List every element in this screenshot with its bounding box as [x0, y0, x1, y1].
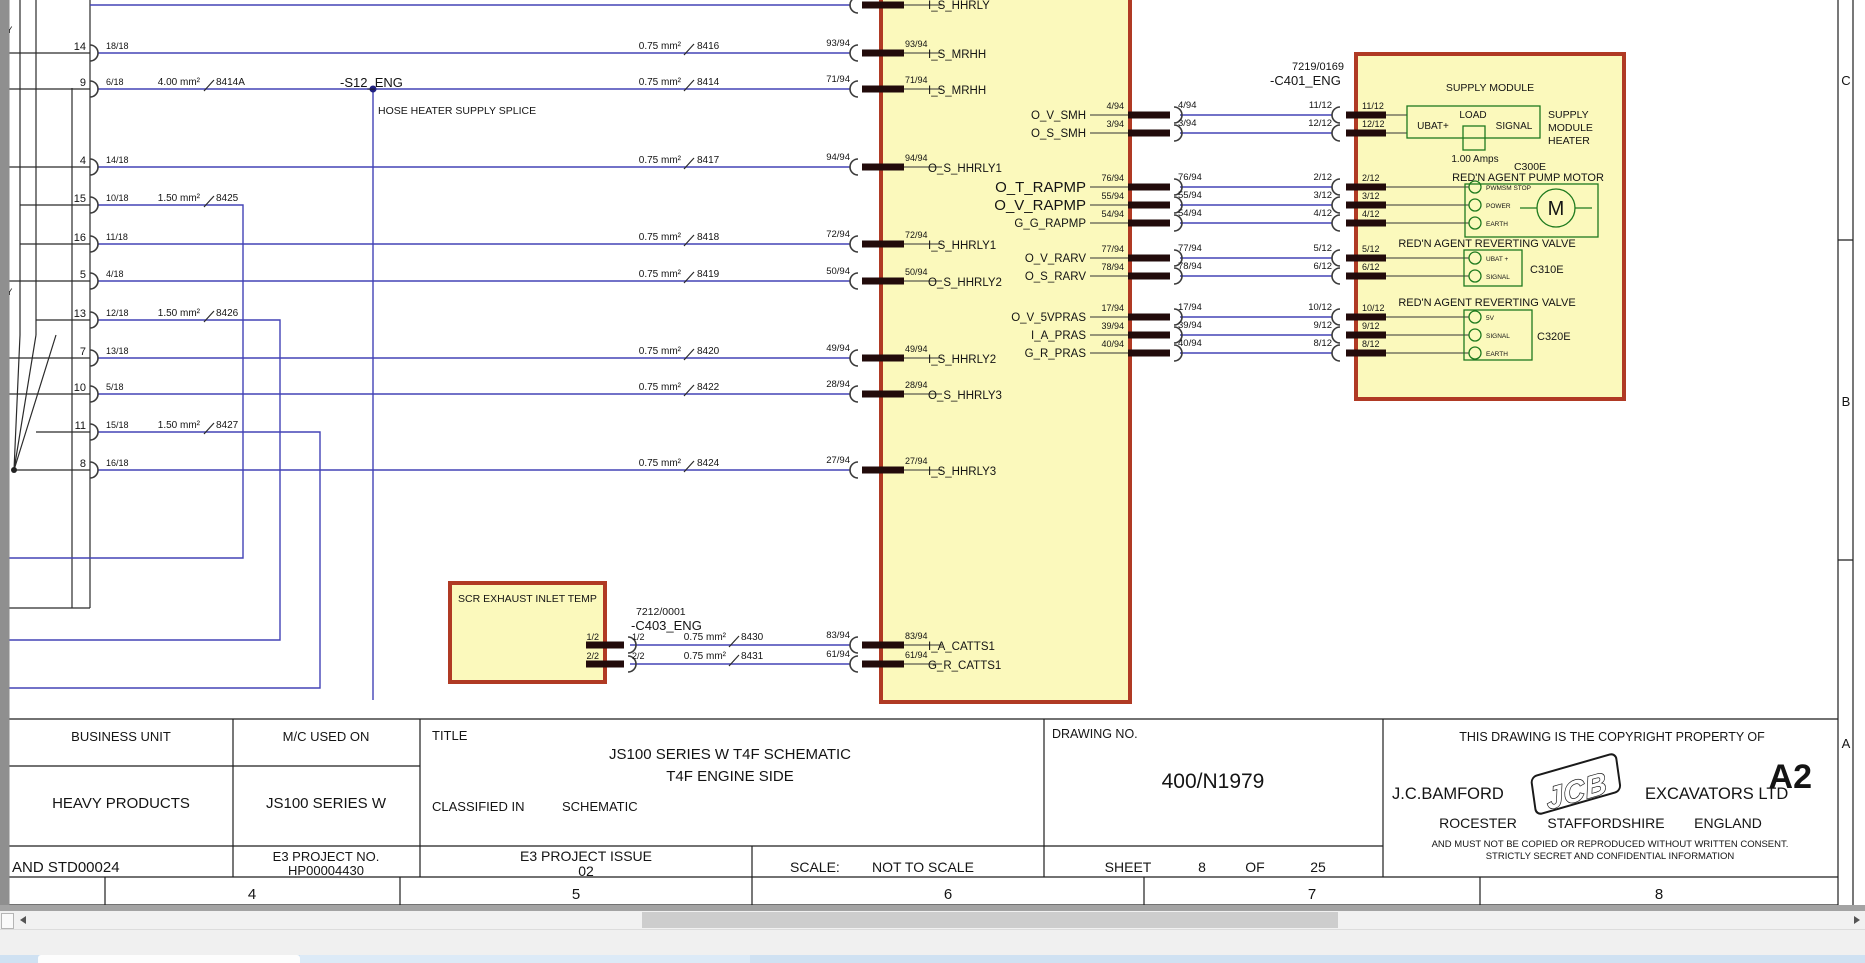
- e3-issue-label: E3 PROJECT ISSUE: [520, 848, 652, 864]
- cavity-label: 14/18: [106, 155, 129, 165]
- e3-project-no-value: HP00004430: [288, 863, 364, 878]
- zone-number: 6: [944, 886, 952, 903]
- cavity-label: 10/18: [106, 193, 129, 203]
- pin-label: 11: [75, 420, 86, 432]
- signal-label: O_S_HHRLY3: [928, 390, 1002, 402]
- ecu-cavity-inner: 71/94: [905, 75, 928, 85]
- cavity-label: 12/18: [106, 308, 129, 318]
- signal-label: O_V_5VPRAS: [1011, 312, 1086, 324]
- terminal-label: POWER: [1486, 203, 1511, 210]
- pin-label: 13: [74, 308, 86, 320]
- wire-gauge: 1.50 mm²: [158, 420, 201, 431]
- signal-label: O_T_RAPMP: [995, 179, 1086, 196]
- taskbar-active-app[interactable]: [38, 955, 300, 963]
- ecu-cavity-outer: 3/94: [1178, 118, 1197, 129]
- module-cavity-outer: 9/12: [1314, 320, 1333, 331]
- e3-issue-value: 02: [578, 863, 594, 879]
- module-cavity-inner: 10/12: [1362, 303, 1385, 313]
- copyright-line1: THIS DRAWING IS THE COPYRIGHT PROPERTY O…: [1459, 730, 1765, 744]
- ecu-cavity-outer: 61/94: [826, 649, 850, 660]
- wire-gauge: 0.75 mm²: [639, 382, 682, 393]
- terminal-label: EARTH: [1486, 221, 1508, 228]
- signal-label: G_R_CATTS1: [928, 660, 1001, 672]
- ecu-cavity-inner: 72/94: [905, 230, 928, 240]
- viewer-toolbar: 8 / 25 125% − +: [0, 929, 1865, 955]
- signal-label: I_A_PRAS: [1031, 330, 1086, 342]
- wire-number: 8422: [697, 382, 720, 393]
- wire-number: 8424: [697, 458, 720, 469]
- zone-number: 8: [1655, 886, 1663, 903]
- title-block: BUSINESS UNIT HEAVY PRODUCTS AND STD0002…: [12, 727, 1812, 879]
- signal-label: O_V_RARV: [1025, 253, 1086, 265]
- ecu-cavity-outer: 4/94: [1178, 100, 1197, 111]
- zone-number: 7: [1308, 886, 1316, 903]
- supply-module-title: SUPPLY MODULE: [1446, 82, 1534, 94]
- cavity-label: 1/2: [632, 632, 645, 642]
- splice-name: -S12_ENG: [340, 75, 403, 90]
- module-cavity-inner: 4/12: [1362, 209, 1380, 219]
- terminal-label: UBAT +: [1486, 256, 1509, 263]
- module-cavity-inner: 3/12: [1362, 191, 1380, 201]
- ecu-cavity-outer: 77/94: [1178, 243, 1202, 254]
- cavity-label: 6/18: [106, 77, 124, 87]
- module-cavity-outer: 11/12: [1309, 100, 1332, 111]
- company-left: J.C.BAMFORD: [1392, 785, 1504, 803]
- fuse-rating: 1.00 Amps: [1451, 154, 1498, 165]
- ecu-cavity-outer: 40/94: [1178, 338, 1202, 349]
- pin-label: 4: [80, 155, 86, 167]
- module-cavity-outer: 2/12: [1314, 172, 1333, 183]
- cavity-label: 13/18: [106, 346, 129, 356]
- component-code: C310E: [1530, 264, 1564, 276]
- module-cavity-outer: 4/12: [1314, 208, 1333, 219]
- ecu-cavity-inner: 94/94: [905, 153, 928, 163]
- cavity-label: 16/18: [106, 458, 129, 468]
- schematic-canvas: AY AY -S12_ENG HOSE HEATER SUPPLY SPLICE…: [0, 0, 1865, 911]
- ecu-cavity-outer: 76/94: [1178, 172, 1202, 183]
- wire-number: 8419: [697, 269, 720, 280]
- component-heading: RED'N AGENT PUMP MOTOR: [1452, 172, 1604, 184]
- component-name: SUPPLY: [1548, 109, 1589, 121]
- left-connector-pin-labels: 1418/18 96/18 414/18 1510/18 1611/18 54/…: [74, 41, 129, 470]
- component-heading: RED'N AGENT REVERTING VALVE: [1398, 238, 1575, 250]
- copyright-notice1: AND MUST NOT BE COPIED OR REPRODUCED WIT…: [1432, 839, 1789, 850]
- terminal-label: UBAT+: [1417, 121, 1449, 132]
- box-pin-label: 1/2: [586, 632, 599, 642]
- ecu-cavity-inner: 28/94: [905, 380, 928, 390]
- ecu-cavity-outer: 78/94: [1178, 261, 1202, 272]
- ecu-cavity-outer: 39/94: [1178, 320, 1202, 331]
- signal-label: I_S_HHRLY: [928, 0, 990, 12]
- business-unit-label: BUSINESS UNIT: [71, 729, 171, 744]
- component-code: C320E: [1537, 331, 1571, 343]
- wire-gauge: 0.75 mm²: [639, 346, 682, 357]
- sheet-number: 8: [1198, 859, 1206, 875]
- ecu-cavity-inner: 50/94: [905, 267, 928, 277]
- terminal-label: EARTH: [1486, 351, 1508, 358]
- copyright-city: ROCESTER: [1439, 815, 1517, 831]
- module-cavity-inner: 5/12: [1362, 244, 1380, 254]
- ecu-cavity-inner: 27/94: [905, 456, 928, 466]
- ecu-cavity-inner: 54/94: [1101, 209, 1124, 219]
- ecu-cavity-outer: 93/94: [826, 38, 850, 49]
- scroll-left-icon[interactable]: [20, 916, 26, 924]
- signal-label: O_V_SMH: [1031, 110, 1086, 122]
- zone-letter: C: [1841, 73, 1850, 88]
- terminal-label: SIGNAL: [1486, 274, 1510, 281]
- wire-number: 8414: [697, 77, 720, 88]
- pin-label: 9: [80, 77, 86, 89]
- horizontal-scrollbar[interactable]: [0, 911, 1865, 929]
- signal-label: O_S_SMH: [1031, 128, 1086, 140]
- sheet-label: SHEET: [1105, 859, 1152, 875]
- wire-gauge: 1.50 mm²: [158, 308, 201, 319]
- cavity-label: 5/18: [106, 382, 124, 392]
- module-cavity-inner: 2/12: [1362, 173, 1380, 183]
- wire-number: 8431: [741, 651, 764, 662]
- scale-label: SCALE:: [790, 859, 840, 875]
- ecu-cavity-inner: 77/94: [1101, 244, 1124, 254]
- sheet-total: 25: [1310, 859, 1326, 875]
- terminal-label: SIGNAL: [1486, 333, 1510, 340]
- wire-gauge: 0.75 mm²: [684, 632, 727, 643]
- classified-value: SCHEMATIC: [562, 799, 638, 814]
- splice-description: HOSE HEATER SUPPLY SPLICE: [378, 105, 536, 117]
- ecu-cavity-outer: 27/94: [826, 455, 850, 466]
- scrollbar-grip: [1, 913, 14, 929]
- signal-label: I_S_HHRLY1: [928, 240, 996, 252]
- ecu-cavity-inner: 93/94: [905, 39, 928, 49]
- zone-letter: A: [1842, 736, 1851, 751]
- module-cavity-outer: 12/12: [1308, 118, 1332, 129]
- left-edge-strip: [0, 0, 9, 911]
- cavity-label: 18/18: [106, 41, 129, 51]
- terminal-label: SIGNAL: [1496, 121, 1533, 132]
- wire-gauge: 0.75 mm²: [639, 458, 682, 469]
- signal-label: I_S_HHRLY2: [928, 354, 996, 366]
- wire-number: 8417: [697, 155, 720, 166]
- wire-gauge: 0.75 mm²: [639, 269, 682, 280]
- taskbar-segment: [300, 955, 750, 963]
- module-cavity-inner: 9/12: [1362, 321, 1380, 331]
- module-cavity-inner: 12/12: [1362, 119, 1385, 129]
- ecu-cavity-outer: 94/94: [826, 152, 850, 163]
- module-cavity-inner: 6/12: [1362, 262, 1380, 272]
- pin-label: 8: [80, 458, 86, 470]
- module-cavity-outer: 6/12: [1314, 261, 1333, 272]
- cavity-label: 4/18: [106, 269, 124, 279]
- zone-letter: B: [1842, 394, 1851, 409]
- mc-used-on-value: JS100 SERIES W: [266, 795, 387, 812]
- copyright-notice2: STRICTLY SECRET AND CONFIDENTIAL INFORMA…: [1486, 851, 1735, 862]
- wire-gauge: 0.75 mm²: [639, 155, 682, 166]
- signal-label: I_S_MRHH: [928, 49, 986, 61]
- wire-number: 8418: [697, 232, 720, 243]
- wire-gauge: 4.00 mm²: [158, 77, 201, 88]
- module-cavity-outer: 8/12: [1314, 338, 1333, 349]
- ecu-cavity-inner: 49/94: [905, 344, 928, 354]
- terminal-label: 5V: [1486, 315, 1495, 322]
- component-name: HEATER: [1548, 135, 1590, 147]
- ecu-cavity-inner: 78/94: [1101, 262, 1124, 272]
- copyright-country: ENGLAND: [1694, 815, 1762, 831]
- scale-value: NOT TO SCALE: [872, 859, 974, 875]
- motor-symbol-letter: M: [1548, 198, 1565, 220]
- cavity-label: 15/18: [106, 420, 129, 430]
- box-pin-label: 2/2: [586, 651, 599, 661]
- terminal-label: LOAD: [1459, 110, 1486, 121]
- wire-number: 8426: [216, 308, 239, 319]
- company-right: EXCAVATORS LTD: [1645, 785, 1788, 803]
- drawing-no-label: DRAWING NO.: [1052, 727, 1138, 741]
- pin-label: 15: [74, 193, 86, 205]
- pin-label: 14: [74, 41, 86, 53]
- pin-label: 5: [80, 269, 86, 281]
- pin-label: 10: [74, 382, 86, 394]
- e3-project-no-label: E3 PROJECT NO.: [273, 849, 380, 864]
- cavity-label: 2/2: [632, 651, 645, 661]
- module-cavity-outer: 10/12: [1308, 302, 1332, 313]
- connector-part-number: 7219/0169: [1292, 61, 1344, 73]
- wire-number: 8420: [697, 346, 720, 357]
- module-cavity-inner: 11/12: [1362, 101, 1384, 111]
- ecu-cavity-inner: 55/94: [1101, 191, 1124, 201]
- wire-number: 8427: [216, 420, 239, 431]
- wire-number: 8425: [216, 193, 239, 204]
- sensor-box-title: SCR EXHAUST INLET TEMP: [458, 593, 597, 605]
- signal-label: G_G_RAPMP: [1014, 218, 1086, 230]
- ecu-cavity-inner: 17/94: [1101, 303, 1124, 313]
- ecu-cavity-inner: 40/94: [1101, 339, 1124, 349]
- component-heading: RED'N AGENT REVERTING VALVE: [1398, 297, 1575, 309]
- note-left: AND STD00024: [12, 859, 120, 876]
- taskbar-strip: [0, 955, 1865, 963]
- zone-number: 4: [248, 886, 256, 903]
- ecu-cavity-inner: 3/94: [1106, 119, 1124, 129]
- ecu-cavity-outer: 49/94: [826, 343, 850, 354]
- wire-gauge: 0.75 mm²: [684, 651, 727, 662]
- signal-label: O_S_HHRLY2: [928, 277, 1002, 289]
- horizontal-scrollbar-thumb[interactable]: [642, 912, 1338, 928]
- ecu-cavity-outer: 28/94: [826, 379, 850, 390]
- signal-label: G_R_PRAS: [1025, 348, 1087, 360]
- pdf-viewer-app: AY AY -S12_ENG HOSE HEATER SUPPLY SPLICE…: [0, 0, 1865, 963]
- ecu-cavity-inner: 39/94: [1101, 321, 1124, 331]
- wire-gauge: 0.75 mm²: [639, 77, 682, 88]
- ecu-cavity-outer: 72/94: [826, 229, 850, 240]
- signal-label: I_S_HHRLY3: [928, 466, 996, 478]
- ecu-cavity-outer: 54/94: [1178, 208, 1202, 219]
- copyright-county: STAFFORDSHIRE: [1547, 815, 1664, 831]
- signal-label: O_S_RARV: [1025, 271, 1086, 283]
- connector-name: -C401_ENG: [1270, 73, 1341, 88]
- wire-number: 8416: [697, 41, 720, 52]
- signal-label: I_A_CATTS1: [928, 641, 995, 653]
- ecu-cavity-outer: 50/94: [826, 266, 850, 277]
- connector-name: -C403_ENG: [631, 618, 702, 633]
- mc-used-on-label: M/C USED ON: [283, 729, 370, 744]
- signal-label: O_S_HHRLY1: [928, 163, 1002, 175]
- drawing-title-line1: JS100 SERIES W T4F SCHEMATIC: [609, 746, 851, 763]
- wire-number: 8430: [741, 632, 764, 643]
- module-cavity-outer: 5/12: [1314, 243, 1333, 254]
- wire-number: 8414A: [216, 77, 245, 88]
- ecu-cavity-outer: 71/94: [826, 74, 850, 85]
- wire-gauge: 1.50 mm²: [158, 193, 201, 204]
- drawing-no-value: 400/N1979: [1162, 770, 1265, 793]
- wire-gauge: 0.75 mm²: [639, 41, 682, 52]
- ecu-cavity-inner: 61/94: [905, 650, 928, 660]
- ecu-cavity-outer: 17/94: [1178, 302, 1202, 313]
- connector-part-number: 7212/0001: [636, 606, 686, 618]
- ecu-cavity-inner: 76/94: [1101, 173, 1124, 183]
- drawing-title-line2: T4F ENGINE SIDE: [666, 768, 794, 785]
- scroll-right-icon[interactable]: [1854, 916, 1860, 924]
- jcb-logo: JCB: [1526, 753, 1628, 820]
- signal-label: O_V_RAPMP: [994, 197, 1086, 214]
- component-name: MODULE: [1548, 122, 1593, 134]
- module-cavity-inner: 8/12: [1362, 339, 1380, 349]
- zone-number: 5: [572, 886, 580, 903]
- ecu-cavity-inner: 83/94: [905, 631, 928, 641]
- of-label: OF: [1245, 859, 1264, 875]
- pin-label: 16: [74, 232, 86, 244]
- cavity-label: 11/18: [106, 232, 128, 242]
- title-label: TITLE: [432, 728, 468, 743]
- terminal-label: PWMSM STOP: [1486, 185, 1531, 192]
- svg-text:JCB: JCB: [1544, 766, 1609, 816]
- classified-label: CLASSIFIED IN: [432, 799, 524, 814]
- pin-label: 7: [80, 346, 86, 358]
- wire-gauge: 0.75 mm²: [639, 232, 682, 243]
- business-unit-value: HEAVY PRODUCTS: [52, 795, 190, 812]
- pin-symbols: [90, 0, 1469, 672]
- ecu-cavity-inner: 4/94: [1106, 101, 1124, 111]
- signal-label: I_S_MRHH: [928, 85, 986, 97]
- ecu-cavity-outer: 55/94: [1178, 190, 1202, 201]
- ecu-cavity-outer: 83/94: [826, 630, 850, 641]
- left-connector-lines: [0, 0, 90, 608]
- module-cavity-outer: 3/12: [1314, 190, 1333, 201]
